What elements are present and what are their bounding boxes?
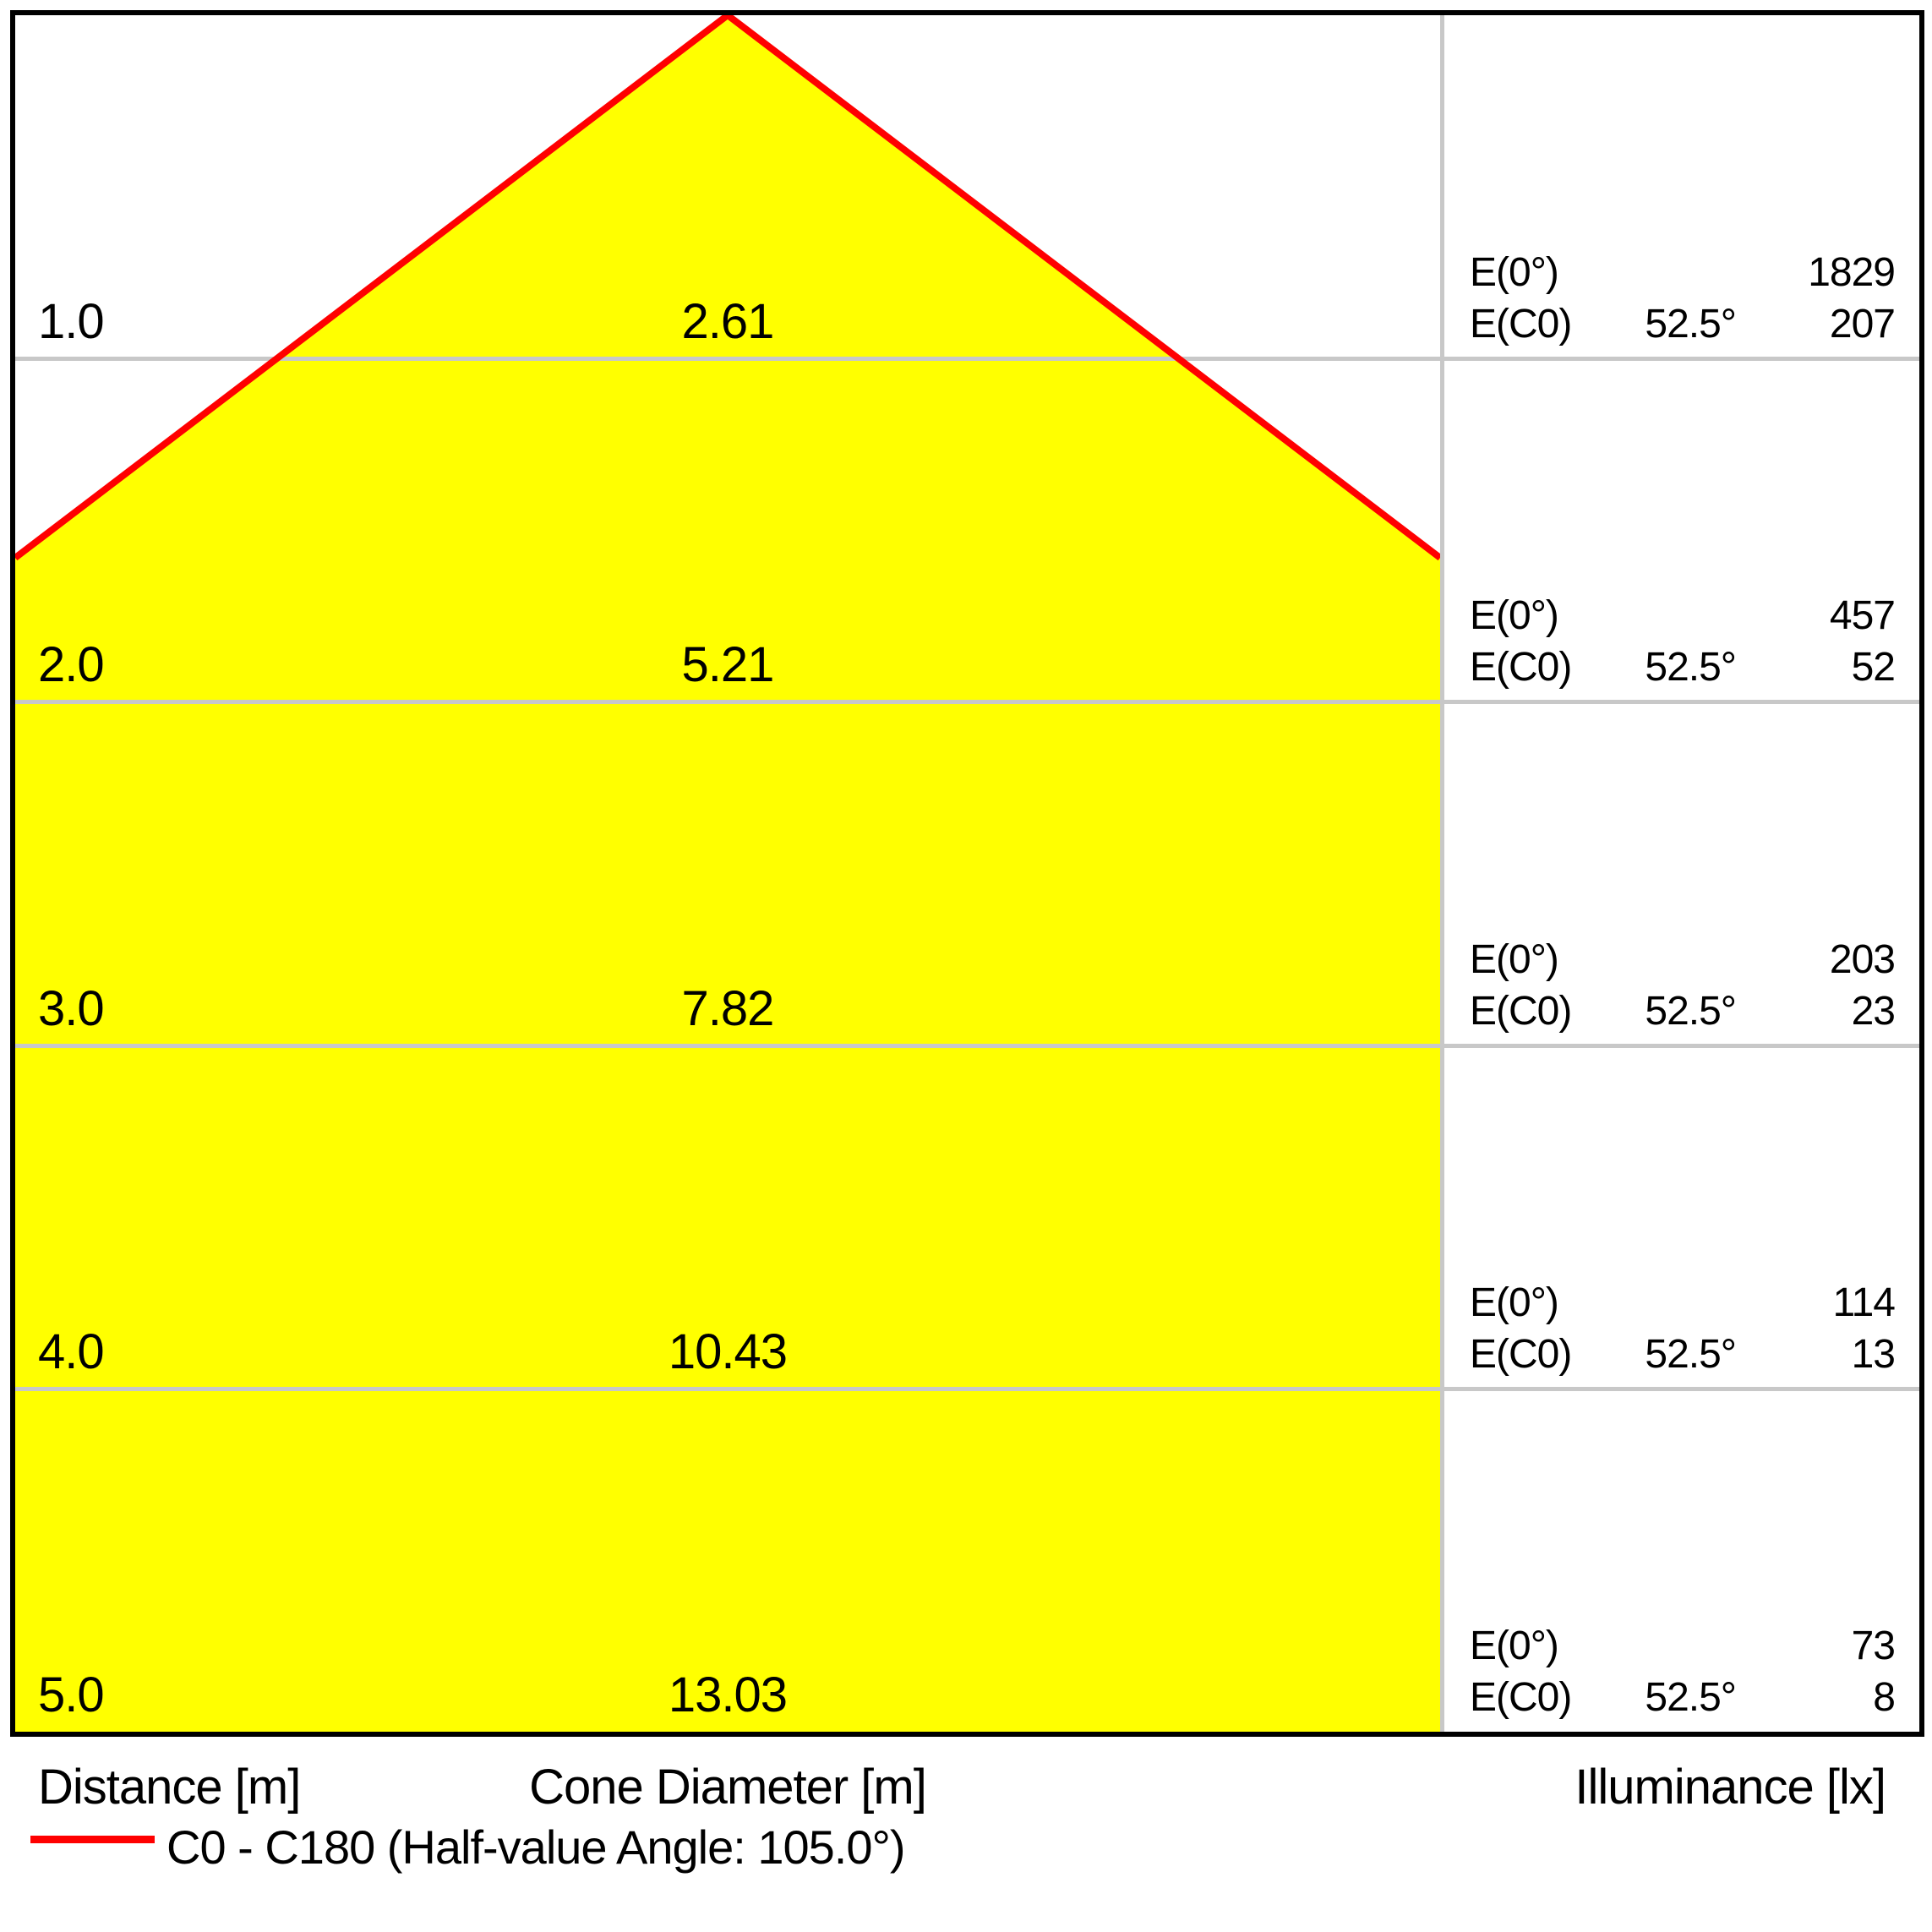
illuminance-row: E(0°) 203 E(C0) 52.5° 23 xyxy=(1444,934,1919,1037)
cone-diameter-value: 5.21 xyxy=(15,641,1440,690)
e0-label: E(0°) xyxy=(1470,1620,1558,1672)
beam-angle-value: 52.5° xyxy=(1571,298,1768,350)
illuminance-row: E(0°) 1829 E(C0) 52.5° 207 xyxy=(1444,247,1919,350)
e0-label: E(0°) xyxy=(1470,1277,1558,1329)
ec0-value: 23 xyxy=(1768,985,1895,1037)
legend-line-swatch xyxy=(30,1836,155,1843)
e0-label: E(0°) xyxy=(1470,934,1558,985)
e0-angle-spacer xyxy=(1558,247,1768,298)
cone-diagram-table: 1.0 2.61 2.0 5.21 3.0 7.82 4.0 10.43 5.0… xyxy=(10,10,1924,1737)
ec0-line: E(C0) 52.5° 52 xyxy=(1470,641,1895,693)
ec0-label: E(C0) xyxy=(1470,985,1571,1037)
e0-line: E(0°) 114 xyxy=(1470,1277,1895,1329)
e0-label: E(0°) xyxy=(1470,590,1558,641)
illuminance-row: E(0°) 73 E(C0) 52.5° 8 xyxy=(1444,1620,1919,1723)
ec0-value: 207 xyxy=(1768,298,1895,350)
beam-angle-value: 52.5° xyxy=(1571,641,1768,693)
ec0-line: E(C0) 52.5° 23 xyxy=(1470,985,1895,1037)
e0-line: E(0°) 73 xyxy=(1470,1620,1895,1672)
e0-line: E(0°) 457 xyxy=(1470,590,1895,641)
cone-diameter-value: 10.43 xyxy=(15,1328,1440,1377)
e0-angle-spacer xyxy=(1558,1620,1768,1672)
e0-label: E(0°) xyxy=(1470,247,1558,298)
cone-diameter-value: 7.82 xyxy=(15,985,1440,1034)
beam-angle-value: 52.5° xyxy=(1571,985,1768,1037)
ec0-value: 52 xyxy=(1768,641,1895,693)
ec0-line: E(C0) 52.5° 8 xyxy=(1470,1672,1895,1723)
e0-line: E(0°) 1829 xyxy=(1470,247,1895,298)
e0-angle-spacer xyxy=(1558,934,1768,985)
e0-value: 203 xyxy=(1768,934,1895,985)
e0-line: E(0°) 203 xyxy=(1470,934,1895,985)
ec0-label: E(C0) xyxy=(1470,1329,1571,1380)
beam-angle-value: 52.5° xyxy=(1571,1329,1768,1380)
ec0-value: 13 xyxy=(1768,1329,1895,1380)
beam-edge-line xyxy=(15,15,1440,558)
legend-label: C0 - C180 (Half-value Angle: 105.0°) xyxy=(166,1824,905,1871)
ec0-label: E(C0) xyxy=(1470,1672,1571,1723)
illuminance-row: E(0°) 457 E(C0) 52.5° 52 xyxy=(1444,590,1919,693)
ec0-line: E(C0) 52.5° 13 xyxy=(1470,1329,1895,1380)
cone-diameter-value: 2.61 xyxy=(15,297,1440,347)
cone-diameter-value: 13.03 xyxy=(15,1671,1440,1720)
cone-diameter-axis-label: Cone Diameter [m] xyxy=(15,1763,1440,1812)
beam-edge-layer xyxy=(15,15,1440,1732)
ec0-label: E(C0) xyxy=(1470,641,1571,693)
e0-value: 1829 xyxy=(1768,247,1895,298)
light-cone-diagram: 1.0 2.61 2.0 5.21 3.0 7.82 4.0 10.43 5.0… xyxy=(0,0,1932,1932)
ec0-line: E(C0) 52.5° 207 xyxy=(1470,298,1895,350)
e0-value: 73 xyxy=(1768,1620,1895,1672)
ec0-value: 8 xyxy=(1768,1672,1895,1723)
e0-angle-spacer xyxy=(1558,590,1768,641)
e0-value: 114 xyxy=(1768,1277,1895,1329)
illuminance-axis-label: Illuminance [lx] xyxy=(1575,1763,1886,1812)
beam-angle-value: 52.5° xyxy=(1571,1672,1768,1723)
ec0-label: E(C0) xyxy=(1470,298,1571,350)
e0-angle-spacer xyxy=(1558,1277,1768,1329)
illuminance-row: E(0°) 114 E(C0) 52.5° 13 xyxy=(1444,1277,1919,1380)
e0-value: 457 xyxy=(1768,590,1895,641)
